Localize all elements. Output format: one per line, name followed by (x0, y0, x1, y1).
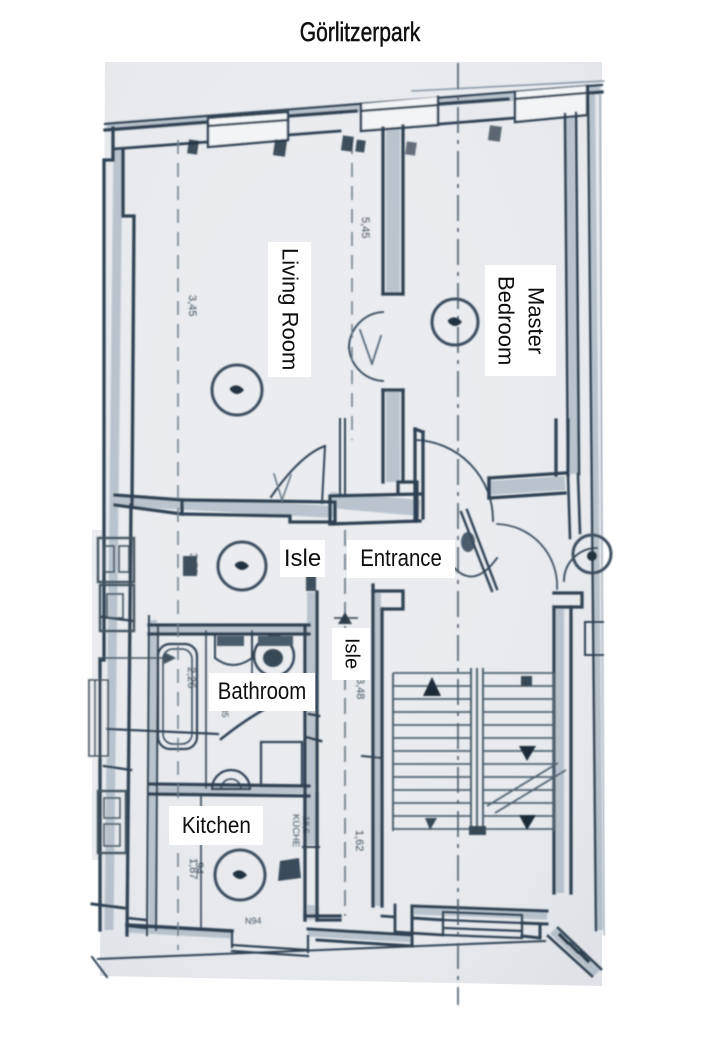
svg-text:3,48: 3,48 (354, 678, 366, 699)
svg-text:2,26: 2,26 (185, 667, 197, 688)
svg-text:94: 94 (193, 862, 205, 874)
svg-text:3,45: 3,45 (186, 295, 198, 316)
svg-text:5,45: 5,45 (359, 217, 371, 238)
svg-text:1,62: 1,62 (353, 830, 365, 851)
svg-text:KÜCHE: KÜCHE (290, 814, 301, 847)
svg-text:18,6: 18,6 (301, 816, 311, 834)
svg-text:N94: N94 (245, 916, 262, 926)
